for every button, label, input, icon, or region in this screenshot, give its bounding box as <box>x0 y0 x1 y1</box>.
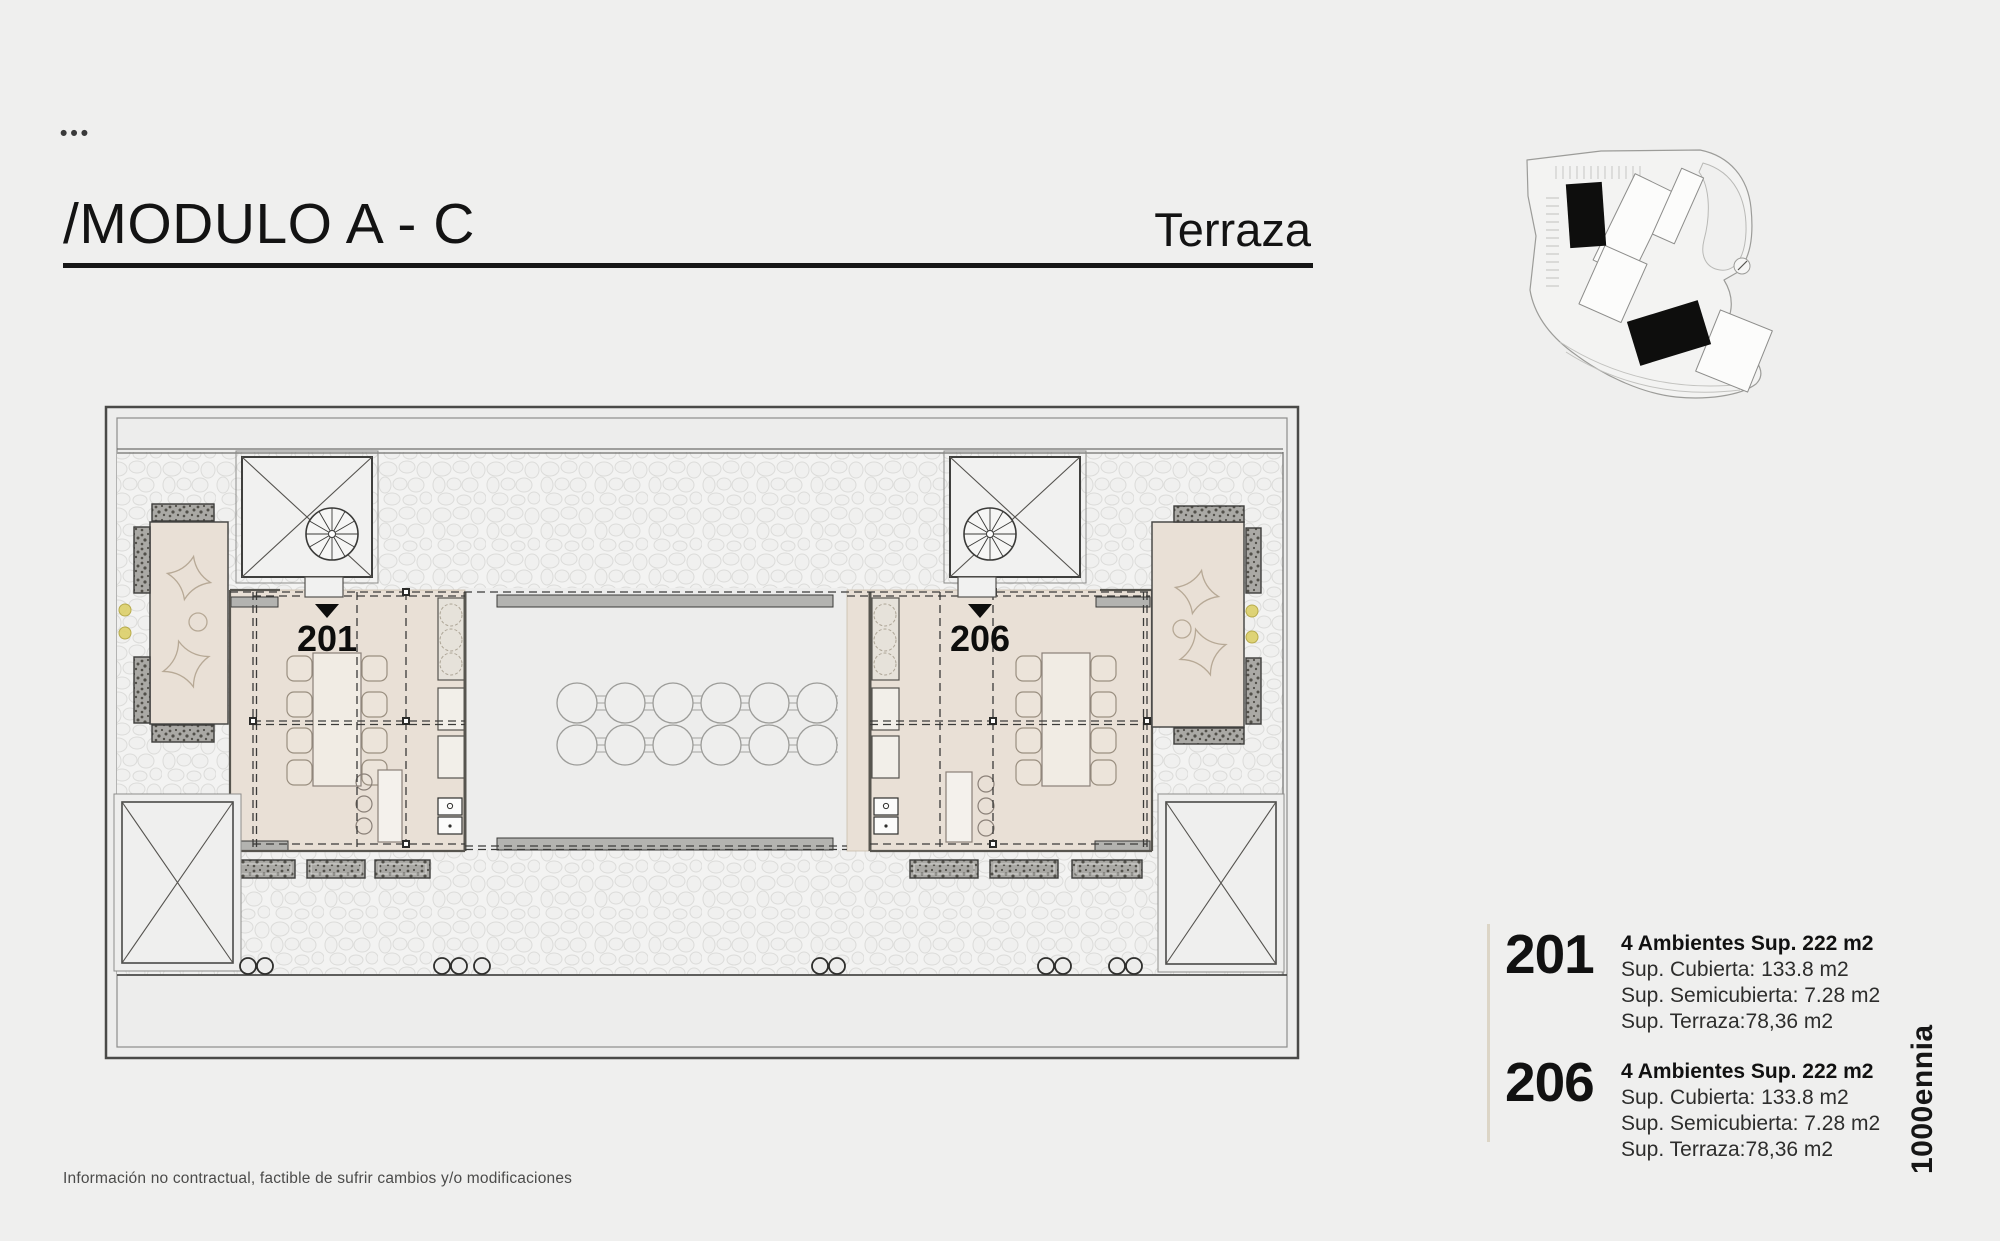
court-bench-top <box>497 595 833 607</box>
unit-201-island <box>378 770 402 842</box>
unit-201-number: 201 <box>1505 928 1597 980</box>
skylight-box-left <box>114 794 241 971</box>
unit-206-number: 206 <box>1505 1056 1597 1108</box>
unit-201-summary: 4 Ambientes Sup. 222 m2 <box>1621 931 1880 957</box>
unit-201-appliance <box>438 798 462 815</box>
spiral-stair-206 <box>964 508 1016 560</box>
unit-201-semicubierta: Sup. Semicubierta: 7.28 m2 <box>1621 983 1880 1009</box>
spiral-stair-201 <box>306 508 358 560</box>
unit-206-sill-top <box>1096 597 1150 607</box>
plan-unit-206-label: 206 <box>950 618 1010 659</box>
unit-201-cubierta: Sup. Cubierta: 133.8 m2 <box>1621 957 1880 983</box>
floor-plan: 201 206 <box>106 407 1298 1058</box>
unit-206-terraza: Sup. Terraza:78,36 m2 <box>1621 1137 1880 1163</box>
unit-206-island <box>946 772 972 842</box>
brochure-page: ••• /MODULO A - C Terraza <box>0 0 2000 1241</box>
unit-201-terraza: Sup. Terraza:78,36 m2 <box>1621 1009 1880 1035</box>
site-plan <box>1527 150 1772 398</box>
central-court <box>465 588 847 850</box>
unit-206-cubierta: Sup. Cubierta: 133.8 m2 <box>1621 1085 1880 1111</box>
plan-canvas: 201 206 <box>0 0 2000 1241</box>
brand-logo: 1000ennia <box>1906 998 1940 1174</box>
skylight-box-right <box>1158 794 1284 972</box>
unit-206-appliance <box>874 798 898 815</box>
disclaimer-text: Información no contractual, factible de … <box>63 1170 572 1188</box>
plan-unit-201-label: 201 <box>297 618 357 659</box>
stair-shaft-201 <box>236 451 378 597</box>
site-building-highlight-1 <box>1566 182 1606 248</box>
terrace-201 <box>150 522 228 724</box>
unit-206-summary: 4 Ambientes Sup. 222 m2 <box>1621 1059 1880 1085</box>
info-divider <box>1487 924 1490 1142</box>
unit-206-semicubierta: Sup. Semicubierta: 7.28 m2 <box>1621 1111 1880 1137</box>
unit-206-sill-bottom <box>1095 841 1150 851</box>
terrace-206 <box>1152 522 1244 727</box>
stair-shaft-206 <box>944 451 1086 597</box>
unit-206-info-card: 206 4 Ambientes Sup. 222 m2 Sup. Cubiert… <box>1505 1056 1880 1163</box>
unit-201-info-card: 201 4 Ambientes Sup. 222 m2 Sup. Cubiert… <box>1505 928 1880 1035</box>
unit-201-sill-top <box>231 597 278 607</box>
court-bench-bottom <box>497 838 833 850</box>
